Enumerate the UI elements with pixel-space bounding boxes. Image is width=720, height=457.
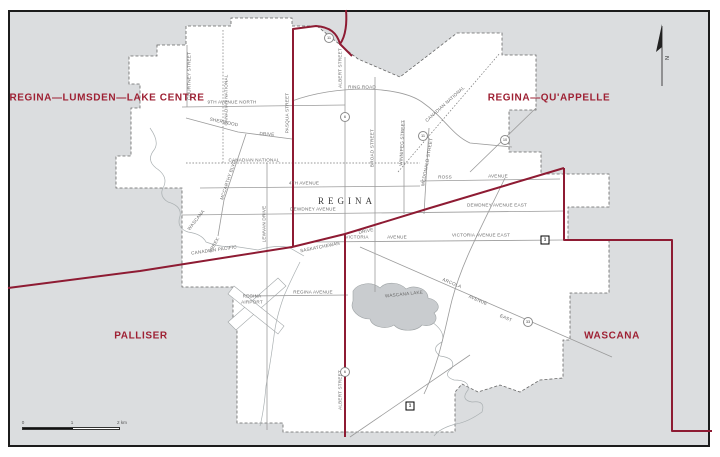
highway-shield: 6 [340,112,350,122]
airport-label: REGINA [243,294,262,299]
district-label-regina-quappelle: REGINA—QU'APPELLE [488,93,611,104]
street-label: AVENUE [387,235,407,240]
railway-label: CANADIAN NATIONAL [224,74,229,125]
highway-shield: 6 [340,367,350,377]
street-label: 9TH AVENUE NORTH [208,100,257,105]
city-label-regina: REGINA [318,196,376,206]
transcanada-shield: 1 [541,236,550,245]
street-label: DRIVE [259,131,274,137]
map-canvas: REGINA—LUMSDEN—LAKE CENTRE REGINA—QU'APP… [0,0,720,457]
scale-bar [22,427,120,430]
street-label: PASQUA STREET [285,93,290,134]
scale-bar-filled [23,428,73,429]
scale-tick-0: 0 [22,420,25,425]
street-label: LEWVAN DRIVE [262,206,267,243]
district-label-regina-lumsden-lake-centre: REGINA—LUMSDEN—LAKE CENTRE [9,93,204,104]
airport-label: AIRPORT [241,300,263,305]
north-arrow-icon [656,24,662,86]
street-label: BROAD STREET [370,129,375,167]
street-label: DEWDNEY AVENUE [290,207,336,212]
street-label: VICTORIA [345,235,368,240]
highway-shield: 33 [523,317,533,327]
street-label: RING ROAD [348,85,376,90]
transcanada-shield: 1 [406,402,415,411]
street-label: ALBERT STREET [338,48,343,88]
scale-tick-2: 2 km [117,420,127,425]
district-label-palliser: PALLISER [114,331,168,342]
highway-shield: 10 [500,135,510,145]
highway-shield: 11 [324,33,334,43]
highway-shield: 11 [418,131,428,141]
north-arrow-label: N [665,56,671,60]
district-label-wascana: WASCANA [584,331,640,342]
street-label: VICTORIA AVENUE EAST [452,233,510,238]
railway-label: CANADIAN NATIONAL [228,158,279,163]
street-label: 4TH AVENUE [289,181,319,186]
street-label: DEWDNEY AVENUE EAST [467,203,527,208]
street-label: ROSS [438,175,452,180]
scale-tick-1: 1 [71,420,74,425]
street-label: COURTNEY STREET [187,52,192,100]
street-label: REGINA AVENUE [293,290,333,295]
street-label: AVENUE [488,174,508,179]
